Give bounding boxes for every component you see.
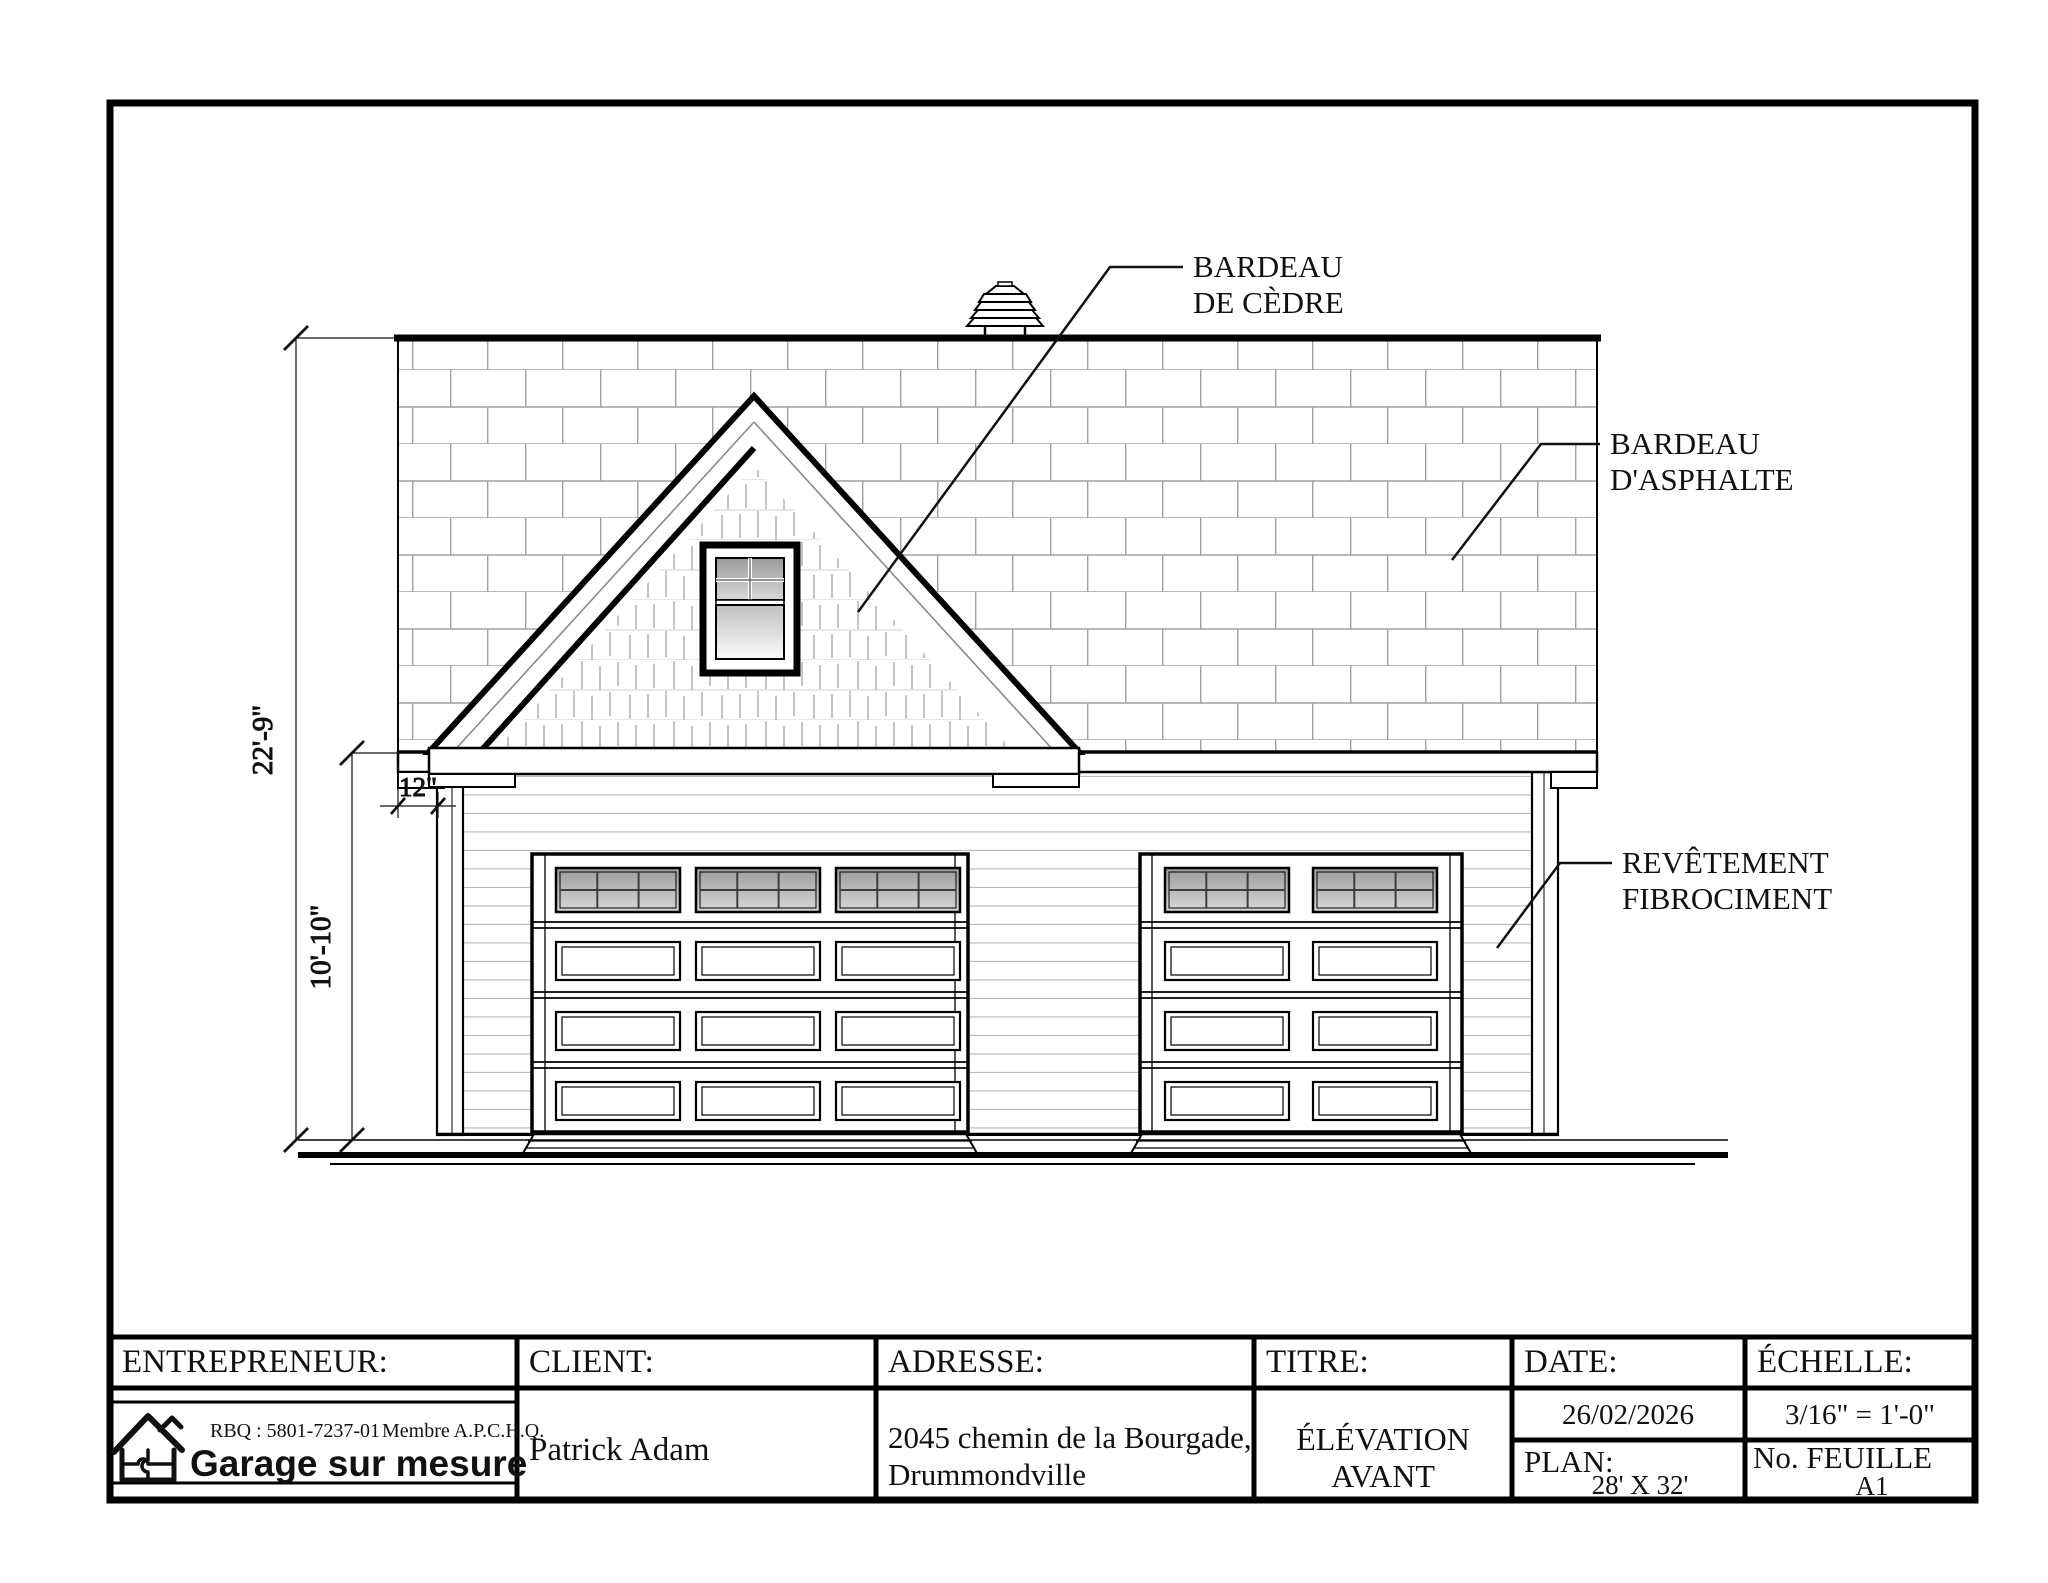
gable-return-right [993,774,1079,787]
annotation-asphalte-line1: BARDEAU [1610,426,1760,461]
drawing-sheet: 22'-9" 10'-10" 12" BARDEAU DE CÈDRE BARD… [0,0,2048,1583]
dim-wall-height: 10'-10" [305,905,337,990]
annotation-fibro-line1: REVÊTEMENT [1622,845,1829,880]
corner-board-right [1532,772,1558,1135]
annotation-cedre-line1: BARDEAU [1193,249,1343,284]
threshold-right [1130,1134,1472,1155]
echelle-label: ÉCHELLE: [1757,1343,1913,1380]
company-name: Garage sur mesure [190,1443,527,1484]
roof-vent-icon [967,282,1043,338]
adresse-line1: 2045 chemin de la Bourgade, [888,1420,1252,1455]
gable-window [703,545,797,673]
fascia-return-right [1551,772,1597,788]
annotation-cedre-line2: DE CÈDRE [1193,285,1344,320]
title-block: ENTREPRENEUR: CLIENT: ADRESSE: TITRE: DA… [110,1337,1975,1501]
feuille-label: No. FEUILLE [1753,1440,1932,1475]
echelle-value: 3/16" = 1'-0" [1785,1399,1935,1431]
date-value: 26/02/2026 [1562,1399,1694,1431]
plan-value: 28' X 32' [1592,1470,1689,1500]
titre-label: TITRE: [1266,1344,1369,1380]
adresse-line2: Drummondville [888,1457,1086,1492]
titre-line1: ÉLÉVATION [1296,1421,1470,1457]
gable-base-trim [429,748,1079,774]
client-label: CLIENT: [529,1344,654,1380]
company-logo-icon [114,1416,182,1480]
annotation-fibro-line2: FIBROCIMENT [1622,881,1832,916]
rbq-number: RBQ : 5801-7237-01 [210,1420,380,1442]
dim-overall-height: 22'-9" [247,705,279,775]
entrepreneur-label: ENTREPRENEUR: [122,1344,388,1380]
elevation-drawing [298,282,1728,1164]
adresse-label: ADRESSE: [888,1344,1044,1380]
date-label: DATE: [1524,1344,1618,1380]
gable-return-left [429,774,515,787]
annotation-asphalte-line2: D'ASPHALTE [1610,462,1794,497]
titre-line2: AVANT [1331,1458,1435,1494]
client-name: Patrick Adam [529,1432,710,1468]
dim-overhang: 12" [399,772,437,802]
corner-board-left [437,772,463,1135]
garage-door-left [532,854,968,1132]
garage-door-right [1140,854,1462,1132]
membership-label: Membre A.P.C.H.Q. [382,1420,544,1442]
threshold-left [522,1134,978,1155]
ground-lines [298,1134,1728,1164]
feuille-value: A1 [1856,1471,1889,1501]
